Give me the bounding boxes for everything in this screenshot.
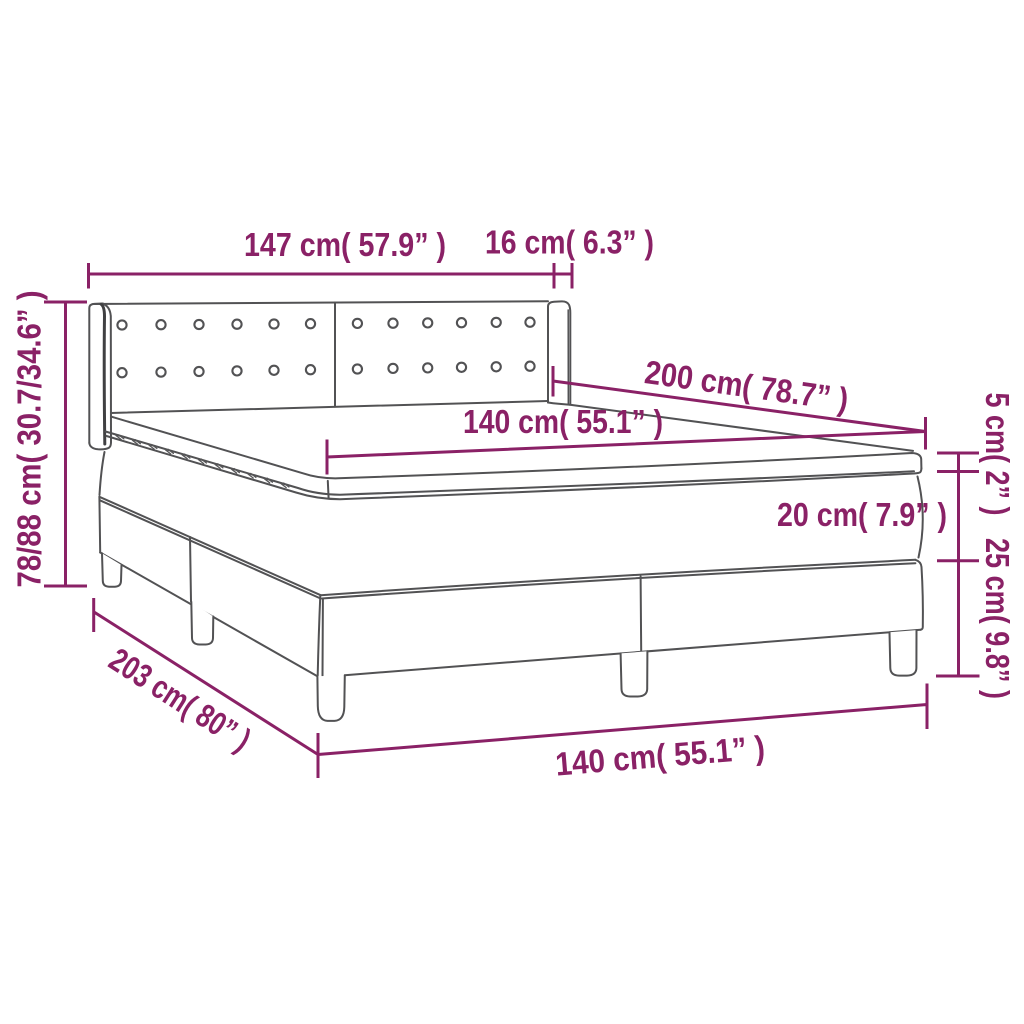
svg-text:25 cm( 9.8” ): 25 cm( 9.8” )	[979, 538, 1016, 699]
svg-text:16 cm( 6.3” ): 16 cm( 6.3” )	[485, 224, 654, 261]
svg-text:140 cm( 55.1” ): 140 cm( 55.1” )	[463, 403, 663, 440]
svg-text:5 cm( 2” ): 5 cm( 2” )	[979, 393, 1016, 516]
svg-text:78/88 cm( 30.7/34.6” ): 78/88 cm( 30.7/34.6” )	[11, 291, 48, 588]
svg-text:20 cm( 7.9” ): 20 cm( 7.9” )	[777, 496, 947, 533]
svg-text:147 cm( 57.9” ): 147 cm( 57.9” )	[244, 226, 446, 263]
